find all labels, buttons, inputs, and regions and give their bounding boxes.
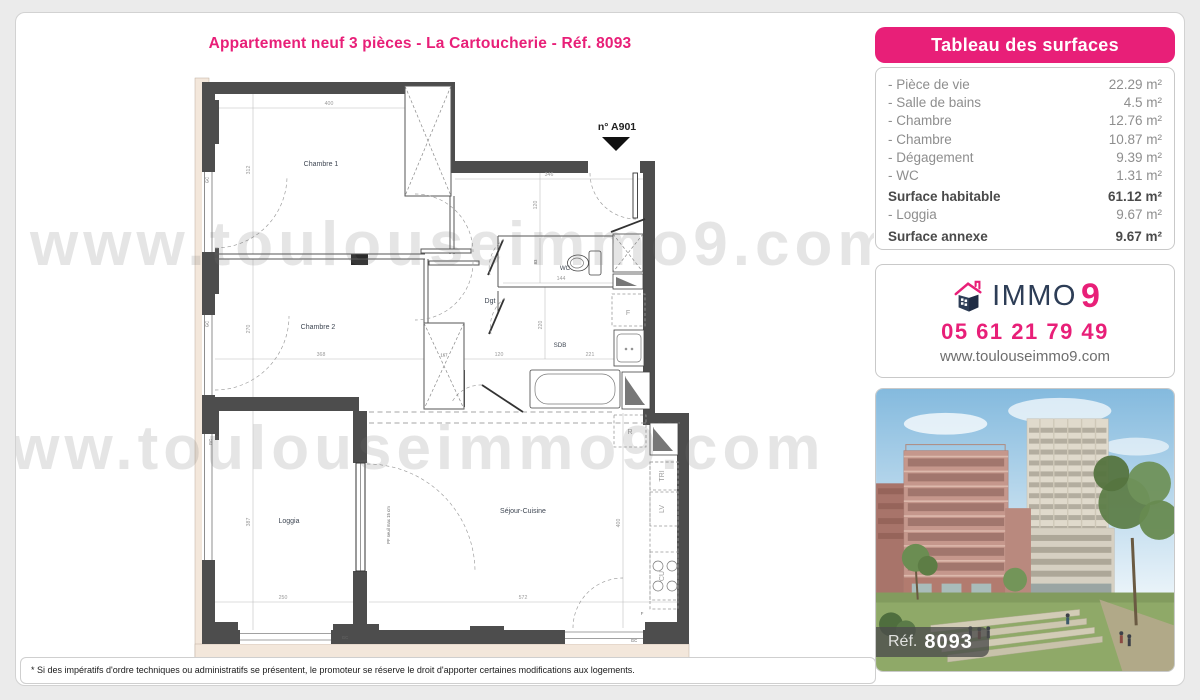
row-label: - Chambre (888, 131, 952, 149)
row-value: 9.67 m² (1115, 228, 1162, 246)
table-row: - WC1.31 m² (888, 167, 1162, 185)
dim-387: 387 (246, 518, 252, 527)
dishwasher-label: LV (659, 505, 666, 513)
entrance-door-leaf (633, 173, 638, 218)
dim-250: 250 (279, 595, 288, 601)
row-value: 9.67 m² (1116, 206, 1162, 224)
facade-band-bottom (195, 644, 689, 658)
dim-346: 346 (545, 172, 554, 178)
dim-220: 220 (538, 321, 544, 330)
page-title: Appartement neuf 3 pièces - La Cartouche… (50, 35, 790, 53)
table-row: - Salle de bains4.5 m² (888, 94, 1162, 112)
dim-400-right: 400 (616, 519, 622, 528)
row-value: 10.87 m² (1109, 131, 1162, 149)
gc-label: GC (208, 439, 213, 445)
gc-label: GC (631, 638, 637, 643)
dim-144: 144 (557, 276, 566, 282)
f-small-label: F (641, 611, 644, 616)
f-label: F (626, 310, 630, 317)
table-row: - Chambre10.87 m² (888, 131, 1162, 149)
row-value: 12.76 m² (1109, 112, 1162, 130)
row-label: - Dégagement (888, 149, 974, 167)
cooktop-label: CU (659, 571, 666, 581)
dim-120-h: 120 (495, 352, 504, 358)
row-value: 4.5 m² (1124, 94, 1162, 112)
bathtub (530, 370, 620, 408)
room-label-dgt: Dgt (485, 298, 496, 305)
surface-table: - Pièce de vie22.29 m² - Salle de bains4… (875, 67, 1175, 250)
floorplan: n° A901 Chambre 1 Chambre 2 Dgt WC SDB S… (193, 72, 693, 660)
row-value: 61.12 m² (1108, 188, 1162, 206)
washbasin (614, 330, 644, 366)
dim-120-v: 120 (533, 201, 539, 210)
room-label-wc: WC (560, 265, 571, 272)
dim-312: 312 (246, 166, 252, 175)
house-icon (950, 278, 988, 314)
sliding-door (421, 249, 471, 253)
room-label-chambre2: Chambre 2 (301, 324, 336, 331)
dim-167: 167 (440, 353, 448, 358)
dim-400-top: 400 (325, 101, 334, 107)
row-label: - Salle de bains (888, 94, 981, 112)
row-label: - Loggia (888, 206, 937, 224)
room-label-sdb: SDB (554, 342, 567, 349)
toilet (589, 251, 601, 275)
fixtures (356, 173, 678, 609)
floorplan-drawing: n° A901 Chambre 1 Chambre 2 Dgt WC SDB S… (193, 72, 693, 660)
ref-value: 8093 (924, 631, 973, 654)
row-label: - WC (888, 167, 919, 185)
table-row-total-annexe: Surface annexe9.67 m² (888, 228, 1162, 246)
brand-number: 9 (1081, 279, 1100, 313)
gc-label: GC (342, 635, 348, 640)
row-value: 22.29 m² (1109, 76, 1162, 94)
table-row-total-habitable: Surface habitable61.12 m² (888, 188, 1162, 206)
kitchen-strip (650, 462, 678, 609)
row-label: Surface annexe (888, 228, 988, 246)
ref-label: Réf. (888, 633, 917, 651)
gc-label: GC (205, 177, 210, 183)
building-photo: Réf. 8093 (875, 388, 1175, 672)
tri-label: TRI (659, 470, 666, 481)
table-row: - Loggia9.67 m² (888, 206, 1162, 224)
phone-number[interactable]: 05 61 21 79 49 (876, 319, 1174, 345)
photo-ref-badge: Réf. 8093 (876, 627, 989, 657)
dim-221: 221 (586, 352, 595, 358)
dim-368: 368 (317, 352, 326, 358)
pf-threshold-label: PF seuil max 15 cm (386, 506, 391, 544)
row-value: 1.31 m² (1116, 167, 1162, 185)
sliding-door (429, 261, 479, 265)
page: Appartement neuf 3 pièces - La Cartouche… (0, 0, 1200, 700)
entrance-marker-icon (602, 137, 630, 151)
unit-number-label: n° A901 (598, 121, 636, 133)
footnote: * Si des impératifs d'ordre techniques o… (20, 657, 876, 684)
dim-270: 270 (246, 325, 252, 334)
room-label-sejour: Séjour-Cuisine (500, 508, 546, 515)
agency-card: IMMO9 05 61 21 79 49 www.toulouseimmo9.c… (875, 264, 1175, 378)
room-label-loggia: Loggia (278, 518, 299, 525)
dim-83: 83 (533, 259, 538, 264)
fridge-label: R (627, 429, 632, 436)
row-label: Surface habitable (888, 188, 1001, 206)
surface-table-header: Tableau des surfaces (875, 27, 1175, 63)
gc-label: GC (205, 321, 210, 327)
row-label: - Pièce de vie (888, 76, 970, 94)
table-row: - Chambre12.76 m² (888, 112, 1162, 130)
brand-text: IMMO (992, 280, 1077, 313)
row-label: - Chambre (888, 112, 952, 130)
table-row: - Pièce de vie22.29 m² (888, 76, 1162, 94)
dim-572: 572 (519, 595, 528, 601)
table-row: - Dégagement9.39 m² (888, 149, 1162, 167)
website-link[interactable]: www.toulouseimmo9.com (876, 348, 1174, 365)
agency-logo: IMMO9 (876, 278, 1174, 314)
row-value: 9.39 m² (1116, 149, 1162, 167)
room-label-chambre1: Chambre 1 (304, 161, 339, 168)
